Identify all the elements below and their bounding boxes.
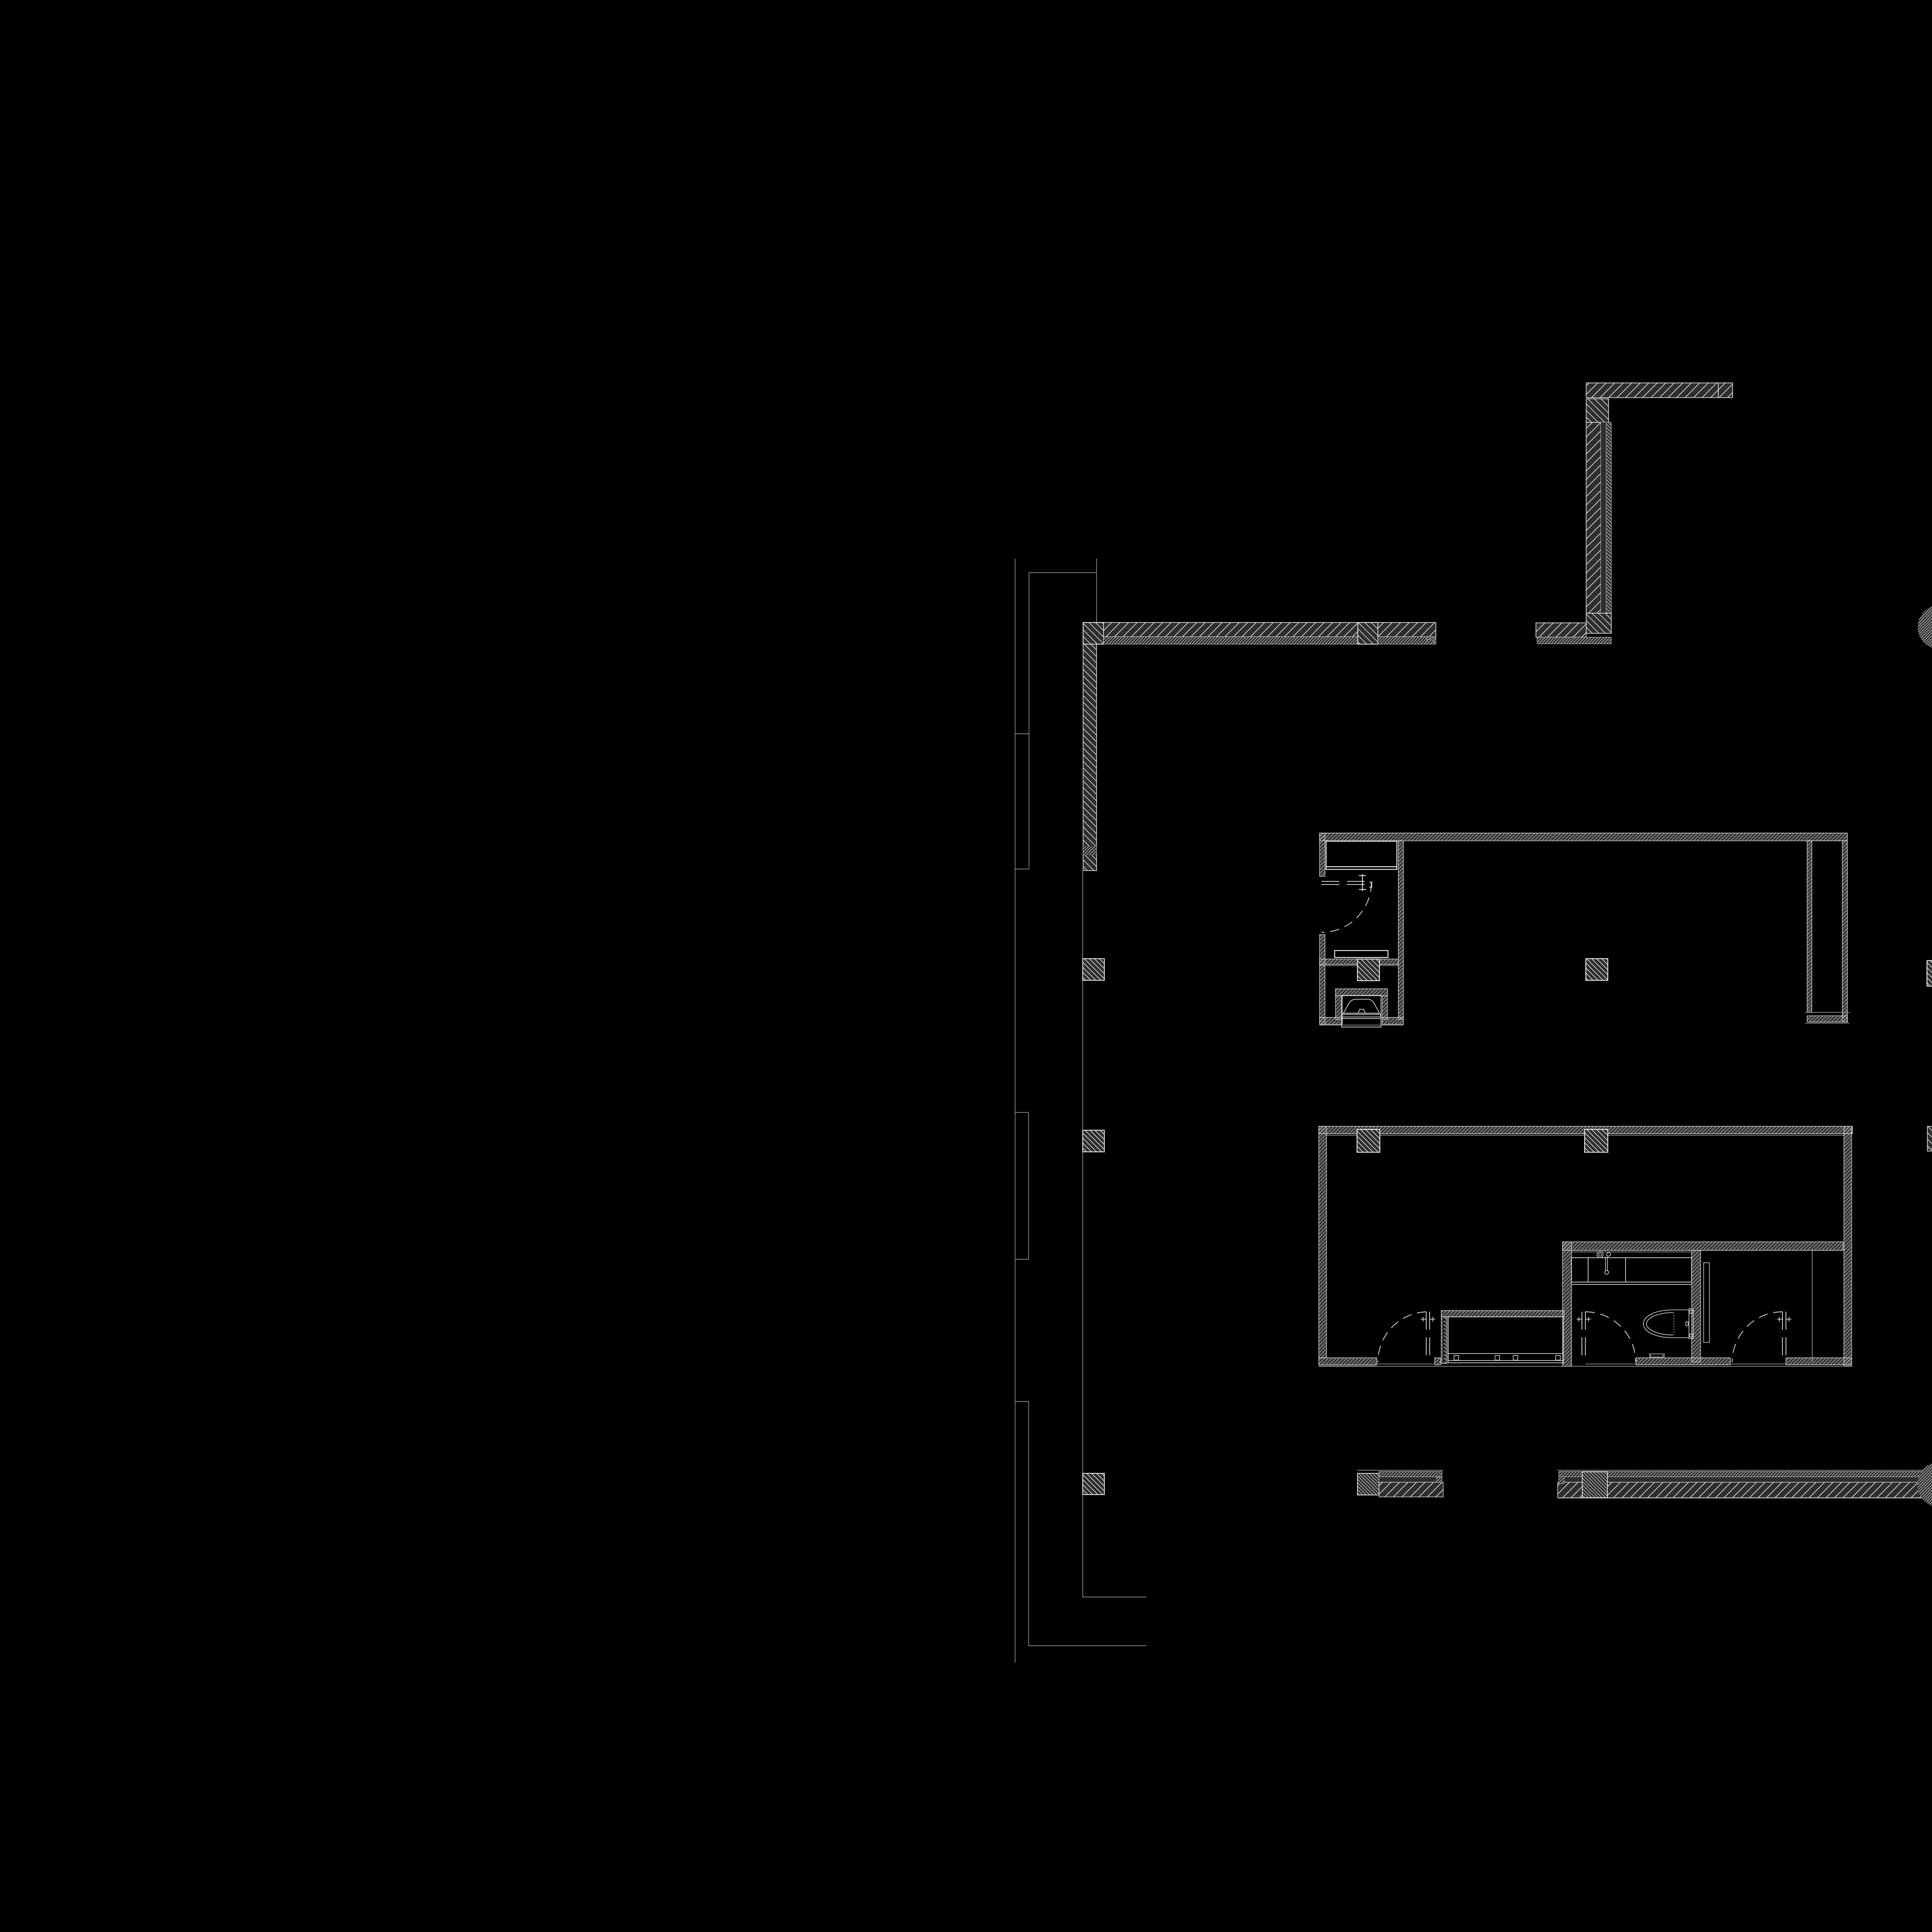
svg-text:P2: P2 bbox=[1426, 634, 1436, 644]
